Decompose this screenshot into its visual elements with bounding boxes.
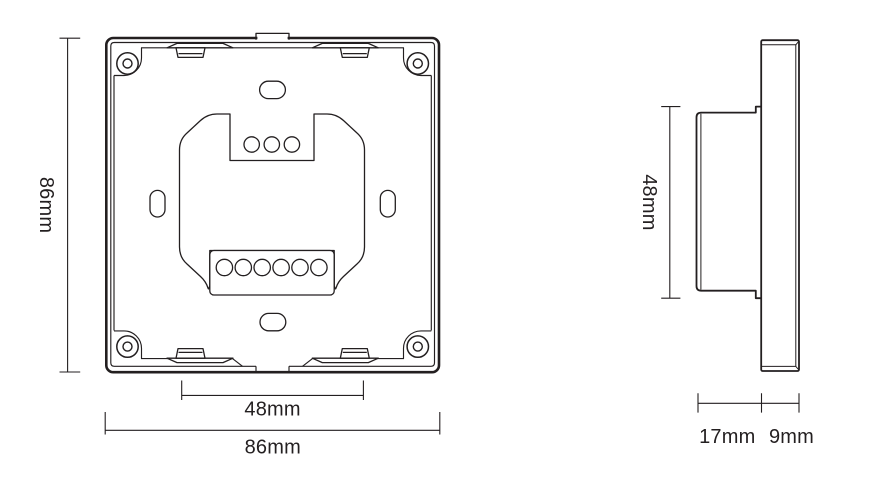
dim-line-side-depths [698,393,799,412]
dim-label-side-base-depth: 17mm [699,426,755,448]
oval-hole-right [380,190,395,217]
dim-line-side-height [661,107,680,299]
side-view [697,40,800,371]
oval-hole-top [260,81,286,98]
dim-label-side-height: 48mm [638,174,660,230]
upper-terminal-holes [244,137,300,152]
dim-label-front-width: 86mm [245,436,301,458]
oval-hole-bottom [260,313,286,330]
oval-hole-left [150,190,165,217]
front-view [106,33,439,372]
dim-label-front-mounting-width: 48mm [244,398,300,420]
dimension-drawing: 86mm 48mm 86mm 48mm 17mm 9mm [0,0,881,481]
dim-line-front-mounting-width [182,381,364,401]
rear-housing-profile [697,107,762,299]
dim-label-front-height: 86mm [35,177,57,233]
dim-label-side-faceplate-depth: 9mm [769,426,814,448]
drawing-svg: 86mm 48mm 86mm 48mm 17mm 9mm [0,0,881,481]
faceplate-profile [761,40,799,371]
dim-line-front-height [60,38,81,372]
